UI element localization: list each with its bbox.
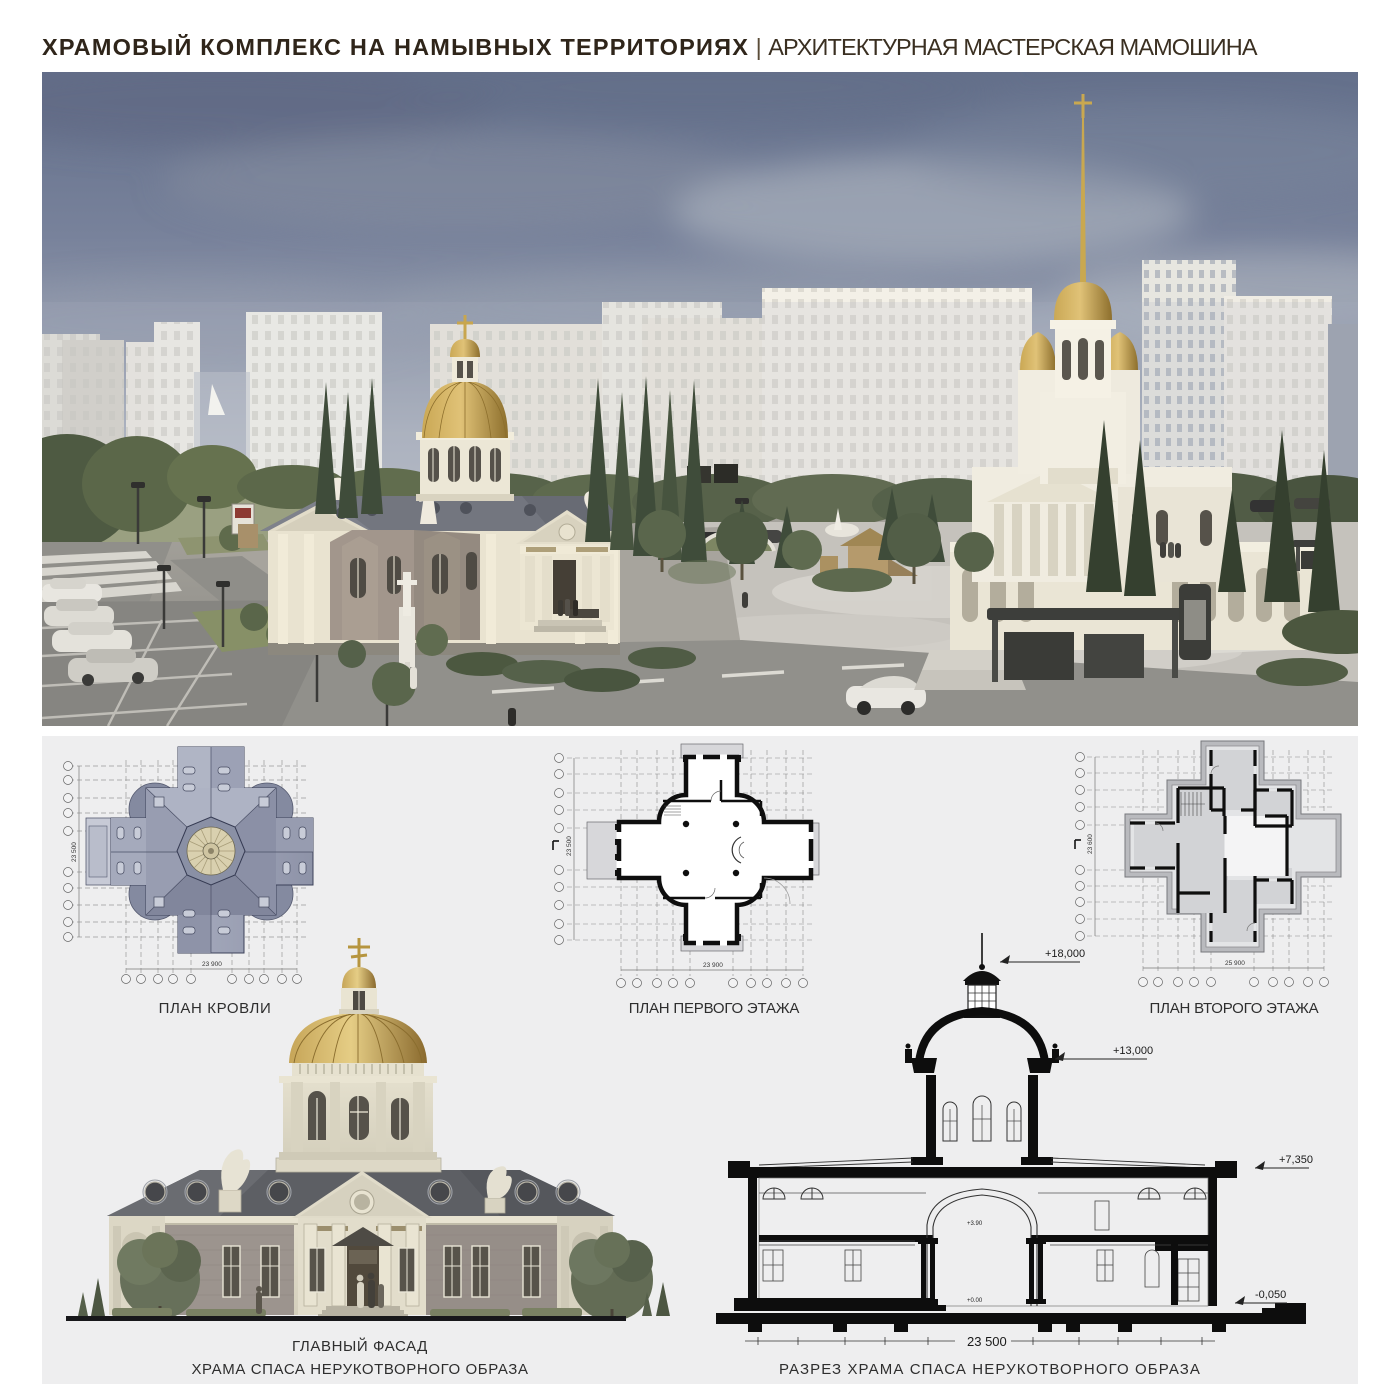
svg-text:-0,050: -0,050	[1255, 1289, 1286, 1301]
svg-text:+3.90: +3.90	[967, 1221, 983, 1227]
svg-text:23 600: 23 600	[1087, 834, 1094, 854]
svg-text:+7,350: +7,350	[1279, 1154, 1313, 1166]
svg-text:+18,000: +18,000	[1045, 948, 1085, 960]
svg-text:+0.00: +0.00	[967, 1298, 983, 1304]
svg-text:23 500: 23 500	[967, 1334, 1007, 1349]
svg-text:23 500: 23 500	[71, 842, 78, 862]
svg-text:23 500: 23 500	[566, 836, 573, 856]
svg-text:+13,000: +13,000	[1113, 1045, 1153, 1057]
